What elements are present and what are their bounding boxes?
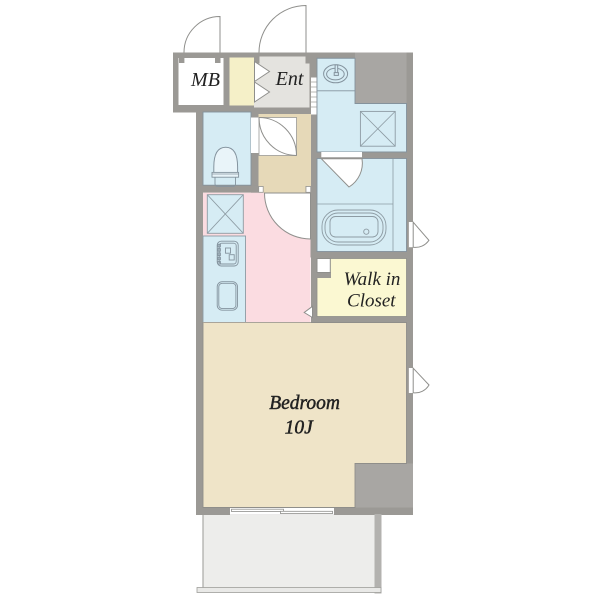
svg-text:Walk in: Walk in [344, 269, 401, 290]
svg-text:10J: 10J [285, 417, 315, 438]
svg-text:Ent: Ent [275, 68, 304, 90]
svg-text:MB: MB [190, 69, 220, 91]
svg-text:Bedroom: Bedroom [269, 393, 340, 414]
svg-text:Closet: Closet [347, 290, 396, 311]
